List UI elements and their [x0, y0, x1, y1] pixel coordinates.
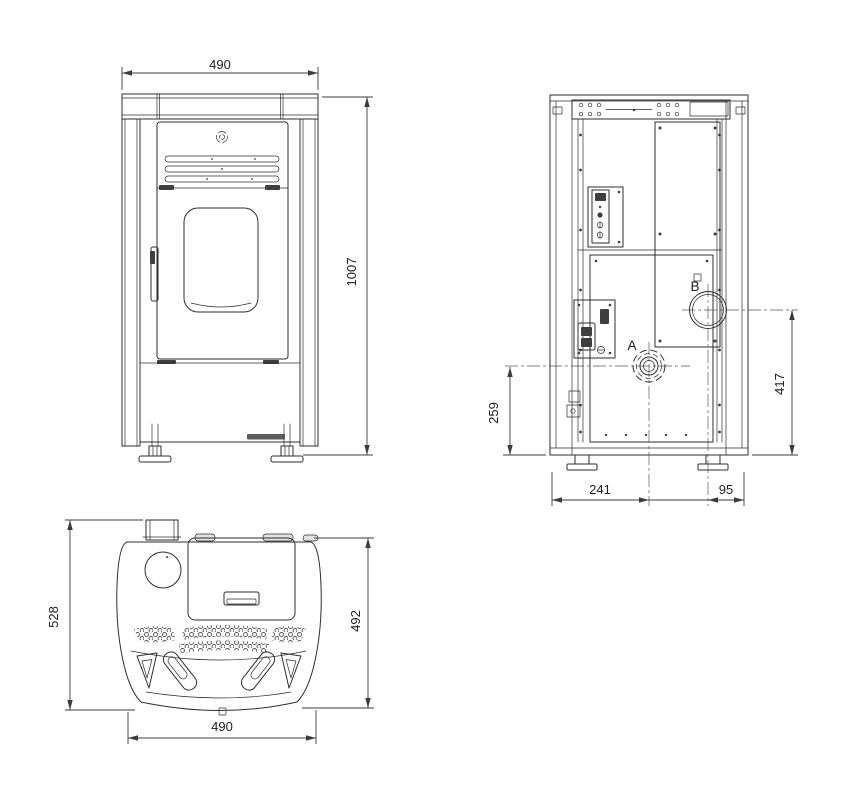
dim-front-width: 490 [209, 57, 231, 72]
vent-triangle-right [281, 653, 301, 688]
dim-front-height: 1007 [344, 258, 359, 287]
rear-right-panel [655, 122, 720, 347]
rear-dim-bottom: 241 95 [552, 472, 744, 506]
side-clip-right [736, 107, 745, 114]
brand-logo-icon [217, 132, 228, 143]
stove-door [150, 122, 288, 364]
dim-flue-offset: 95 [719, 482, 733, 497]
front-feet [139, 446, 303, 462]
stove-lower-panel [140, 363, 300, 446]
rear-feet [567, 455, 728, 470]
flue-duct [143, 520, 181, 540]
front-center-notch [219, 708, 226, 715]
door-glass-window [184, 208, 258, 312]
control-board [588, 187, 623, 247]
rear-dim-259: 259 [486, 367, 546, 455]
port-b-label: B [690, 279, 699, 294]
stove-top-band [122, 94, 318, 119]
port-a-label: A [627, 338, 636, 353]
power-socket [600, 309, 609, 324]
front-view: 490 1007 [122, 57, 373, 462]
technical-drawing-canvas: 490 1007 [0, 0, 852, 796]
rear-frame-rails [578, 119, 722, 442]
louver-right [239, 649, 278, 693]
dim-depth-overall: 528 [46, 606, 61, 628]
door-hinge-left [159, 185, 174, 190]
dim-flue-height: 417 [772, 373, 787, 395]
dim-intake-height: 259 [486, 402, 501, 424]
flue-collar [145, 552, 181, 588]
top-dim-492: 492 [302, 538, 374, 708]
lid-handle [224, 592, 259, 605]
louver-left [161, 649, 200, 693]
rear-view: A B 259 417 [486, 95, 798, 506]
door-hinge-right [265, 185, 280, 190]
dim-depth-body: 492 [348, 610, 363, 632]
side-clip-left [553, 107, 562, 114]
dim-top-width: 490 [211, 719, 233, 734]
hopper-lid [188, 538, 295, 620]
air-intake-port-a: A [505, 338, 690, 506]
dim-intake-offset: 241 [589, 482, 611, 497]
grille-mesh [134, 625, 306, 653]
front-width-dimension: 490 [122, 57, 318, 90]
top-view: 528 492 490 [46, 520, 374, 744]
vent-triangle-left [137, 653, 157, 688]
front-height-dimension: 1007 [303, 97, 373, 455]
air-vent-slats [165, 156, 279, 182]
rear-dim-417: 417 [752, 310, 798, 455]
brand-text-smudge [247, 434, 285, 440]
rear-top-bar [572, 100, 730, 119]
